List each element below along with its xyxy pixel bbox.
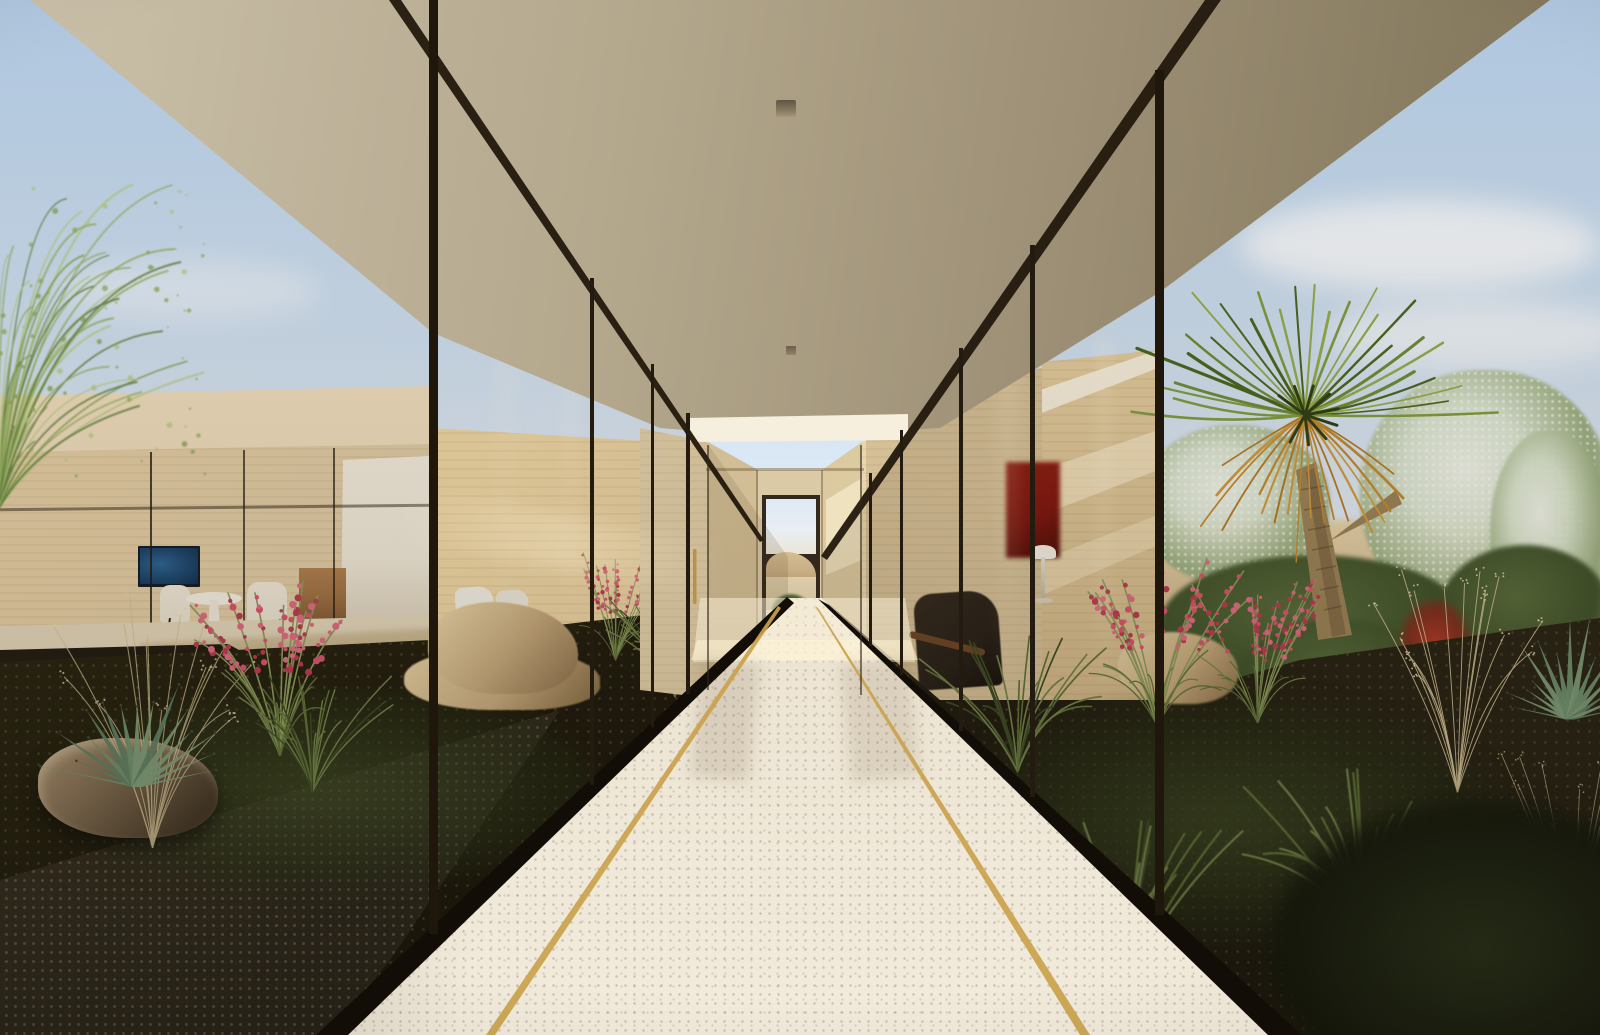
rendering-canvas bbox=[0, 0, 1600, 1035]
mullion bbox=[651, 364, 654, 727]
mullion bbox=[1155, 70, 1164, 915]
mullion bbox=[959, 348, 963, 731]
door-handle bbox=[693, 549, 697, 604]
far-glass-edge bbox=[707, 445, 709, 690]
left-base-channel bbox=[316, 597, 794, 1035]
mullion bbox=[590, 278, 594, 785]
glazing-mullions bbox=[0, 0, 1600, 1035]
mullion bbox=[429, 0, 438, 934]
door-stile bbox=[869, 473, 872, 646]
mullion bbox=[1030, 245, 1035, 797]
right-base-channel bbox=[818, 599, 1302, 1035]
door-stile bbox=[686, 413, 690, 694]
brass-floor-inlay bbox=[486, 606, 781, 1035]
mullion bbox=[900, 430, 903, 675]
far-glass-edge bbox=[860, 445, 862, 695]
